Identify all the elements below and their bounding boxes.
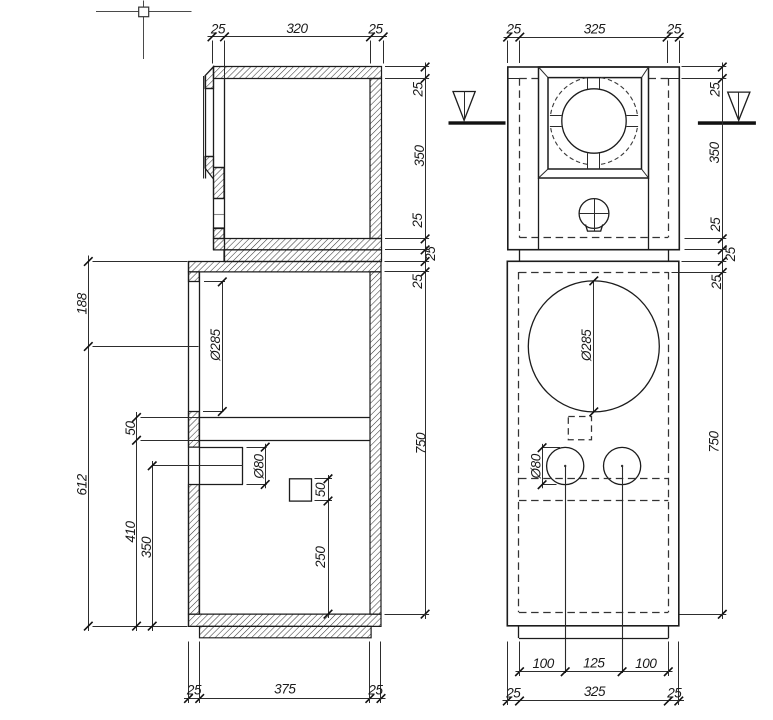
svg-text:25: 25	[666, 22, 682, 37]
svg-text:50: 50	[313, 482, 328, 497]
svg-text:Ø285: Ø285	[208, 328, 223, 361]
svg-text:612: 612	[75, 473, 90, 495]
svg-text:350: 350	[139, 536, 154, 558]
svg-text:25: 25	[505, 686, 521, 701]
svg-text:100: 100	[635, 656, 657, 671]
svg-text:350: 350	[412, 145, 427, 167]
svg-text:25: 25	[410, 213, 425, 229]
svg-text:25: 25	[723, 246, 738, 262]
svg-text:125: 125	[583, 655, 605, 670]
svg-text:410: 410	[123, 520, 138, 542]
svg-text:100: 100	[533, 656, 555, 671]
svg-text:25: 25	[210, 22, 226, 37]
svg-text:25: 25	[505, 22, 521, 37]
svg-text:25: 25	[411, 82, 426, 98]
svg-text:325: 325	[584, 21, 606, 36]
svg-text:250: 250	[313, 546, 328, 569]
svg-text:25: 25	[708, 82, 723, 98]
svg-text:25: 25	[410, 274, 425, 290]
svg-text:25: 25	[367, 22, 383, 37]
svg-text:325: 325	[584, 684, 606, 699]
svg-text:25: 25	[708, 217, 723, 233]
svg-text:25: 25	[666, 686, 682, 701]
svg-text:188: 188	[75, 292, 90, 314]
svg-text:50: 50	[123, 421, 138, 436]
svg-text:Ø80: Ø80	[251, 453, 266, 479]
svg-text:320: 320	[286, 21, 308, 36]
svg-text:25: 25	[186, 683, 202, 698]
svg-text:25: 25	[367, 683, 383, 698]
svg-text:750: 750	[414, 432, 429, 454]
svg-text:375: 375	[274, 682, 296, 697]
svg-text:Ø80: Ø80	[528, 453, 543, 479]
svg-text:Ø285: Ø285	[579, 329, 594, 362]
svg-text:350: 350	[707, 141, 722, 163]
svg-text:25: 25	[709, 274, 724, 290]
svg-text:25: 25	[423, 246, 438, 262]
svg-text:750: 750	[707, 430, 722, 452]
